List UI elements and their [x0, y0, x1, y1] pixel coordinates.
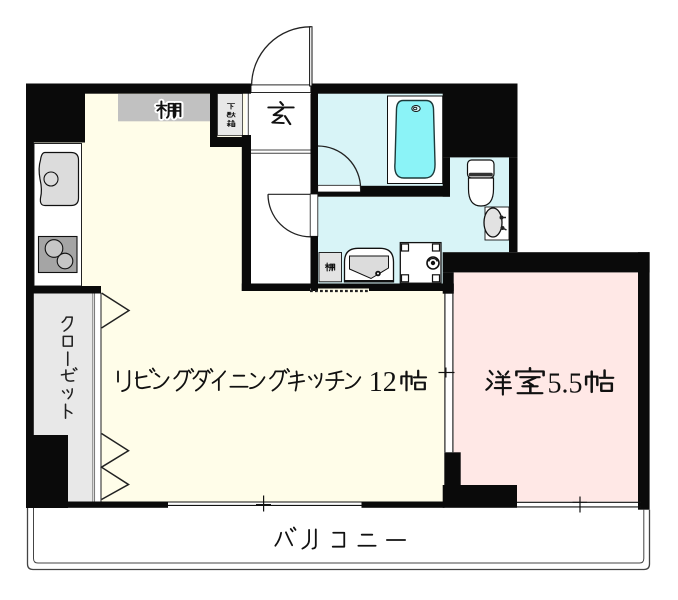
- svg-text:12: 12: [369, 367, 397, 398]
- svg-text:5.5: 5.5: [548, 369, 583, 400]
